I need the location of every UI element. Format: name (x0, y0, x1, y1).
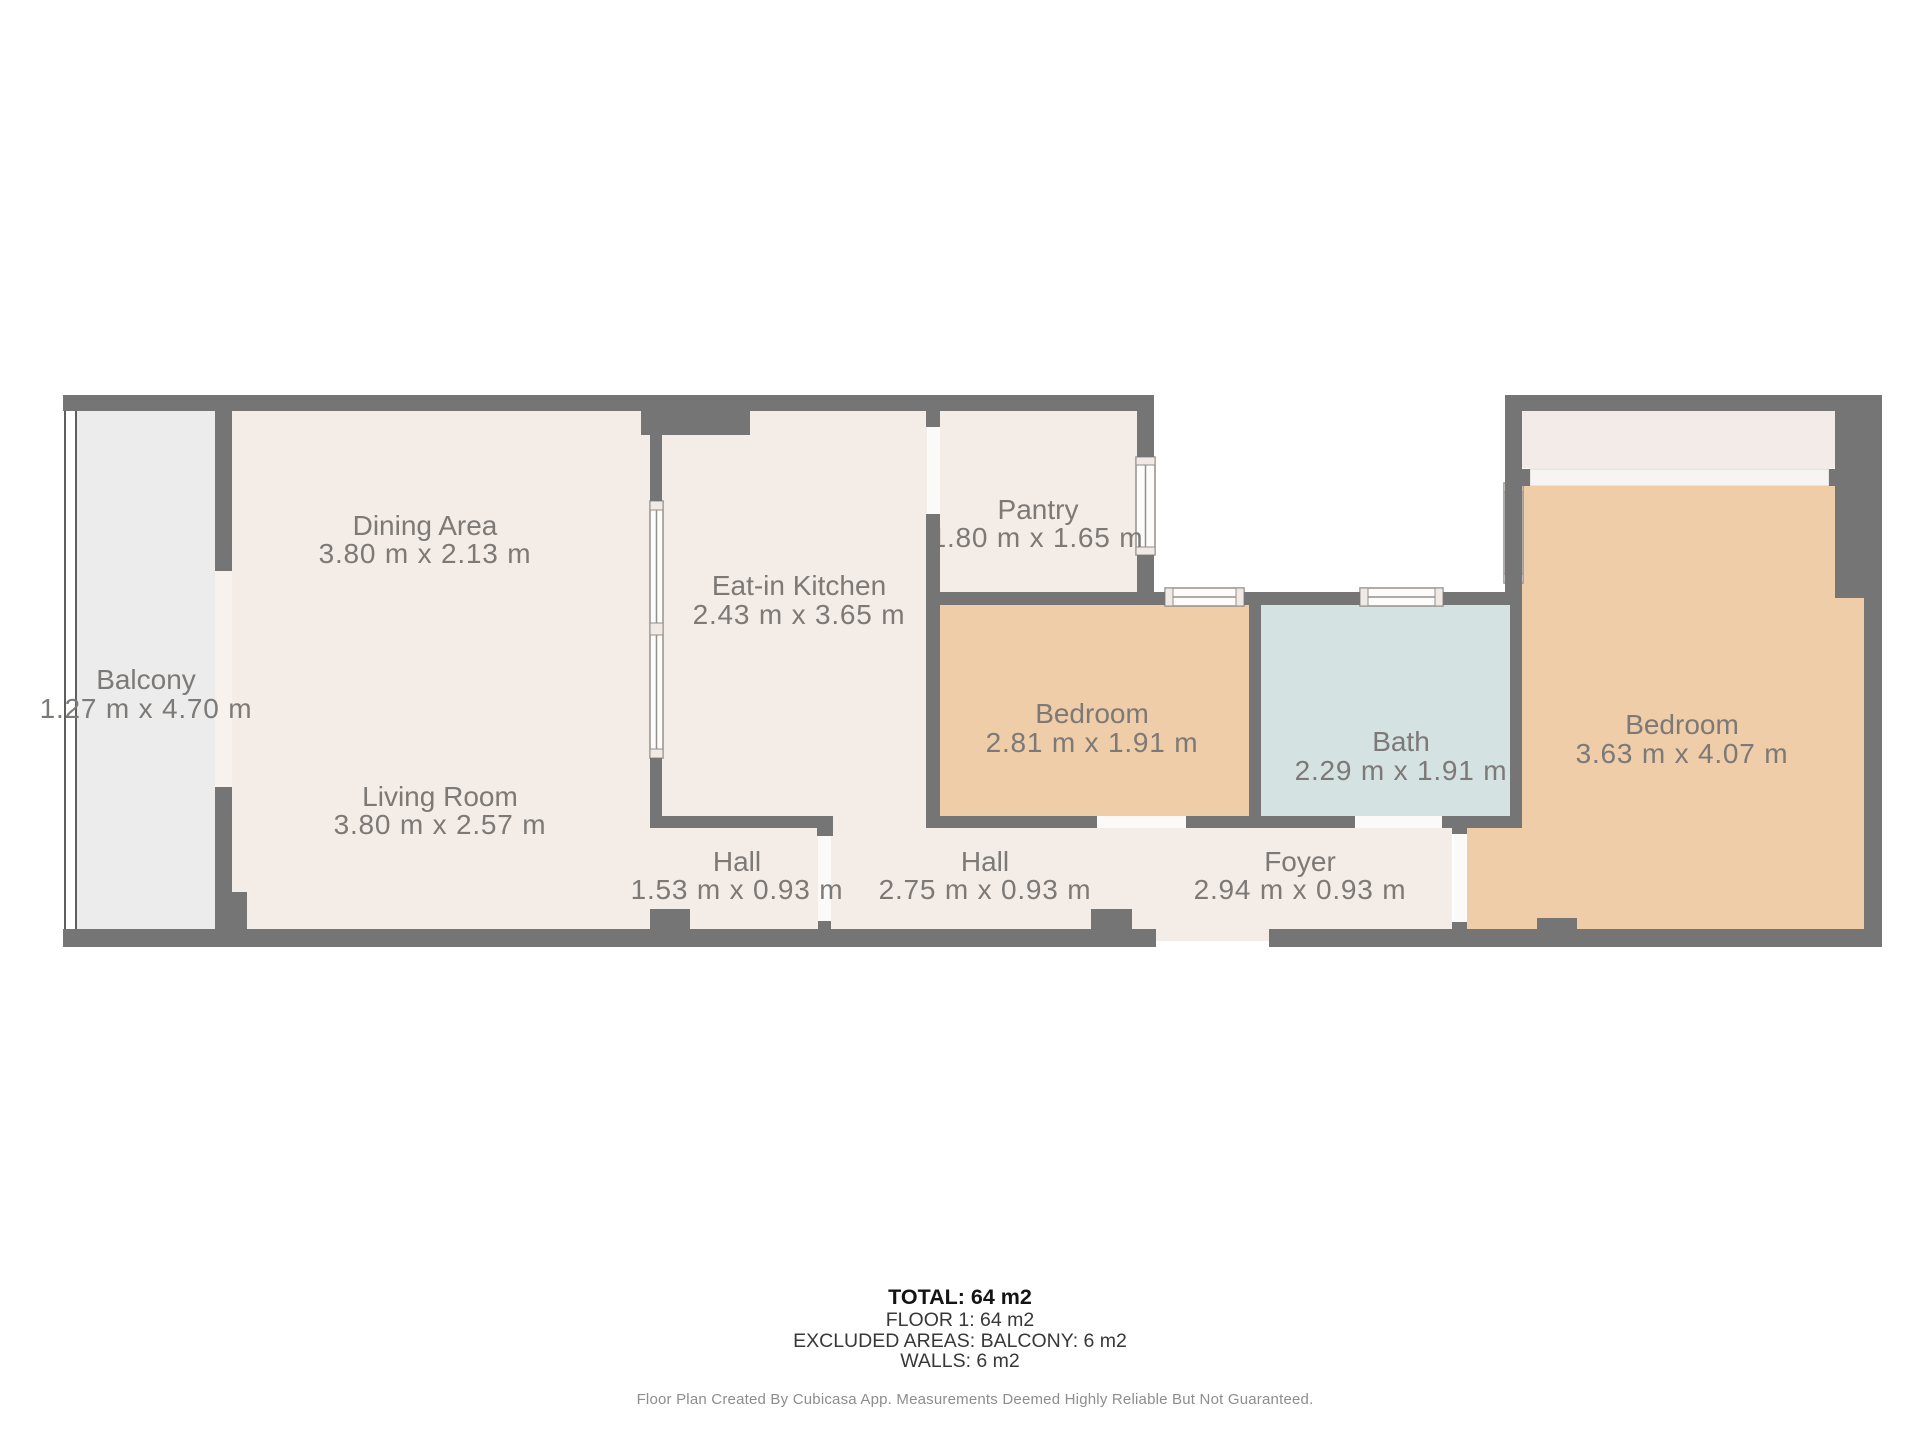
svg-text:Floor Plan Created By Cubicasa: Floor Plan Created By Cubicasa App. Meas… (637, 1391, 1314, 1408)
svg-text:Eat-in Kitchen: Eat-in Kitchen (712, 570, 886, 601)
svg-text:Foyer: Foyer (1264, 846, 1336, 877)
svg-text:3.80 m x 2.13 m: 3.80 m x 2.13 m (319, 538, 532, 569)
svg-text:2.29 m x 1.91 m: 2.29 m x 1.91 m (1295, 755, 1508, 786)
svg-text:Hall: Hall (713, 846, 761, 877)
svg-text:FLOOR 1: 64 m2: FLOOR 1: 64 m2 (886, 1309, 1034, 1331)
svg-text:Bedroom: Bedroom (1625, 709, 1739, 740)
svg-text:Pantry: Pantry (998, 494, 1079, 525)
svg-text:1.80 m x 1.65 m: 1.80 m x 1.65 m (931, 522, 1144, 553)
svg-text:1.27 m x 4.70 m: 1.27 m x 4.70 m (40, 693, 253, 724)
svg-text:3.63 m x 4.07 m: 3.63 m x 4.07 m (1576, 738, 1789, 769)
svg-text:2.43 m x 3.65 m: 2.43 m x 3.65 m (693, 599, 906, 630)
svg-text:Bedroom: Bedroom (1035, 698, 1149, 729)
svg-text:EXCLUDED AREAS: BALCONY: 6 m2: EXCLUDED AREAS: BALCONY: 6 m2 (793, 1330, 1127, 1352)
svg-text:Dining Area: Dining Area (353, 510, 498, 541)
svg-text:2.81 m x 1.91 m: 2.81 m x 1.91 m (986, 727, 1199, 758)
svg-text:TOTAL: 64 m2: TOTAL: 64 m2 (888, 1285, 1032, 1309)
svg-text:WALLS: 6 m2: WALLS: 6 m2 (900, 1350, 1020, 1372)
svg-text:1.53 m x 0.93 m: 1.53 m x 0.93 m (631, 874, 844, 905)
svg-text:Living Room: Living Room (362, 781, 518, 812)
svg-text:Balcony: Balcony (96, 664, 196, 695)
svg-text:Hall: Hall (961, 846, 1009, 877)
svg-text:2.94 m x 0.93 m: 2.94 m x 0.93 m (1194, 874, 1407, 905)
svg-text:Bath: Bath (1372, 726, 1430, 757)
svg-text:3.80 m x 2.57 m: 3.80 m x 2.57 m (334, 809, 547, 840)
svg-text:2.75 m x 0.93 m: 2.75 m x 0.93 m (879, 874, 1092, 905)
